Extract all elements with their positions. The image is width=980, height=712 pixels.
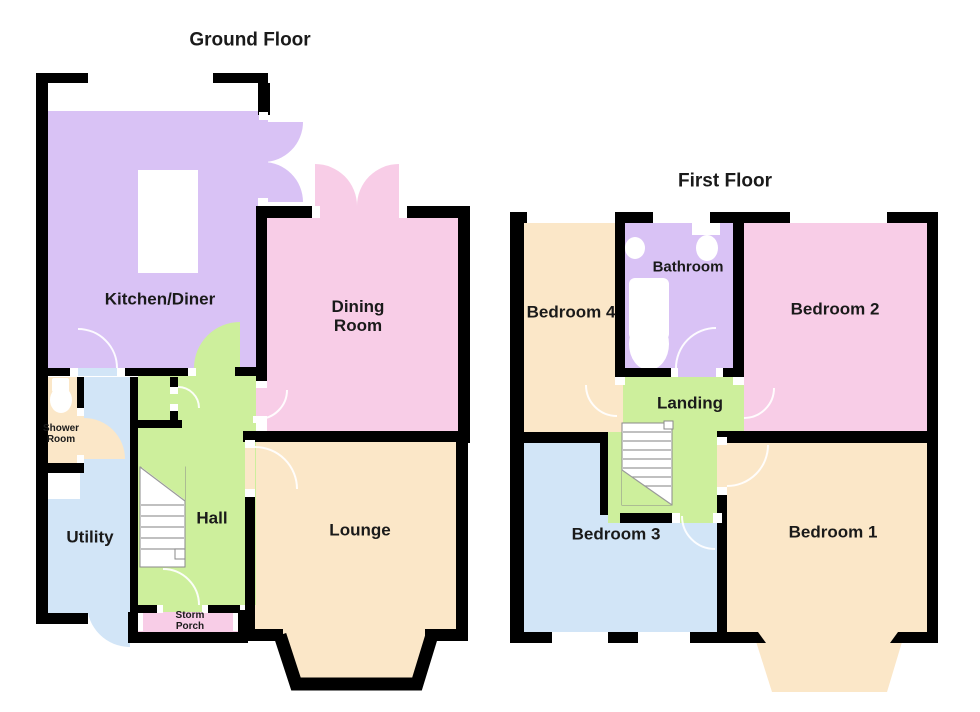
floorplan-drawing (0, 0, 980, 712)
kitchen-french-door-arc (263, 162, 303, 202)
room-label-utility: Utility (66, 527, 113, 546)
utility-back-door-arc (87, 604, 130, 647)
room-label-shower-room: Shower Room (43, 423, 79, 445)
first-floor-plan (510, 212, 938, 692)
utility-unit (48, 473, 80, 499)
ground-floor-title: Ground Floor (189, 29, 310, 50)
first-floor-title: First Floor (678, 170, 772, 191)
lounge-bay-window (277, 629, 434, 678)
bedroom4-room-area (524, 223, 623, 432)
room-label-dining: Dining Room (332, 297, 385, 335)
bathroom-sink (625, 237, 645, 259)
dining-french-door-arc (315, 164, 357, 206)
stair-newel (175, 549, 185, 559)
room-label-landing: Landing (657, 393, 723, 412)
room-label-storm-porch: Storm Porch (176, 610, 205, 632)
bedroom1-bay-window (753, 632, 905, 692)
kitchen-island (138, 170, 198, 273)
bathroom-toilet (696, 235, 718, 261)
shower-toilet (50, 387, 72, 413)
room-label-hall: Hall (196, 508, 227, 527)
kitchen-french-door-arc (263, 122, 303, 162)
ground-floor-plan (36, 73, 470, 684)
room-label-lounge: Lounge (329, 520, 390, 539)
room-label-bedroom2: Bedroom 2 (791, 299, 880, 318)
stair-newel (664, 421, 673, 429)
room-label-kitchen: Kitchen/Diner (105, 289, 216, 308)
dining-french-door-arc (357, 164, 399, 206)
ground-floor-stairs (140, 466, 185, 567)
bathroom-bathtub (629, 318, 669, 370)
room-label-bedroom3: Bedroom 3 (572, 524, 661, 543)
bathroom-toilet (692, 223, 720, 235)
floorplan-canvas: Ground Floor Kitchen/Diner Dining Room L… (0, 0, 980, 712)
first-floor-stairs (622, 421, 673, 505)
room-label-bedroom4: Bedroom 4 (527, 302, 616, 321)
room-label-bedroom1: Bedroom 1 (789, 522, 878, 541)
room-label-bathroom: Bathroom (653, 260, 724, 277)
